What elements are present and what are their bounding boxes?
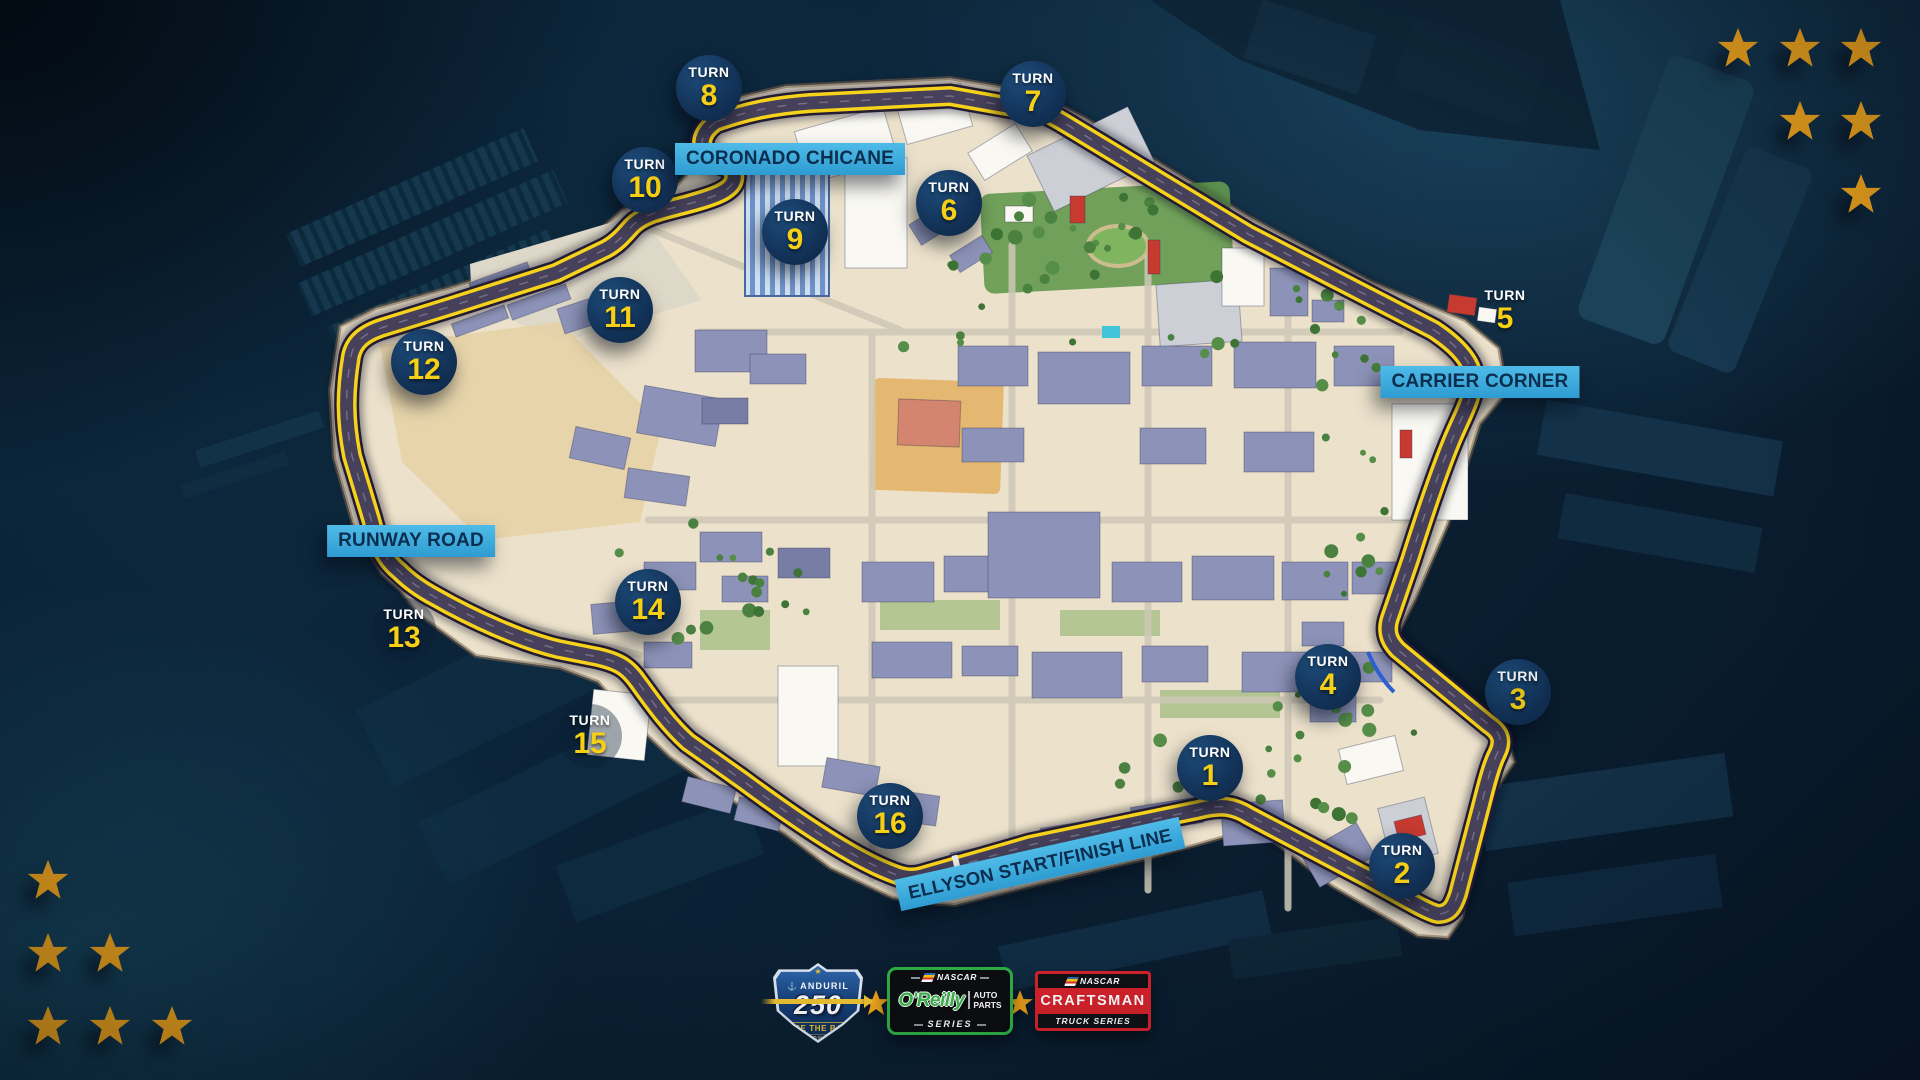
decor-star [151,1006,193,1046]
decor-star [27,933,69,973]
turn-number: 6 [941,196,958,226]
oreilly-series: SERIES [927,1020,972,1029]
decor-star [1840,28,1882,68]
decor-star [1779,28,1821,68]
turn-marker-1: TURN1 [1177,735,1243,801]
turn-word: TURN [869,793,910,807]
turn-number: 5 [1497,304,1514,334]
turn-word: TURN [1307,654,1348,668]
dash-icon [911,977,920,979]
turn-marker-9: TURN9 [762,199,828,265]
turn-word: TURN [403,339,444,353]
decor-star [89,1006,131,1046]
turn-number: 8 [701,81,718,111]
turn-number: 12 [407,355,440,385]
turn-word: TURN [1381,843,1422,857]
turn-marker-4: TURN4 [1295,644,1361,710]
badge-star-icon: ★ [814,968,821,976]
oreilly-brand: O'Reilly [898,991,964,1010]
turn-marker-13: TURN13 [372,598,436,662]
turn-marker-6: TURN6 [916,170,982,236]
label-carrier-corner: CARRIER CORNER [1381,366,1580,398]
turn-number: 7 [1025,87,1042,117]
decor-star [1840,174,1882,214]
turn-word: TURN [1497,669,1538,683]
turn-marker-8: TURN8 [676,55,742,121]
turn-marker-12: TURN12 [391,329,457,395]
turn-number: 1 [1202,761,1219,791]
turn-number: 2 [1394,859,1411,889]
decor-star [27,860,69,900]
nascar-oreilly-series-logo: NASCAR O'Reilly AUTOPARTS SERIES [887,967,1013,1035]
sanction-name: NASCAR [1080,976,1120,986]
decor-star [1779,101,1821,141]
badge-race-number: 250 [794,992,842,1019]
turn-number: 4 [1320,670,1337,700]
turn-word: TURN [627,579,668,593]
turn-marker-15: TURN15 [558,704,622,768]
anduril-250-badge: ★ ⚓ANDURIL 250 RACE THE BASE CORONADO [773,963,863,1043]
badge-tagline: RACE THE BASE [777,1022,858,1035]
turn-marker-3: TURN3 [1485,659,1551,725]
label-runway-road: RUNWAY ROAD [327,525,495,557]
decor-star [27,1006,69,1046]
oreilly-product-bottom: PARTS [973,1001,1001,1010]
turn-marker-5: TURN5 [1484,288,1525,334]
turn-word: TURN [774,209,815,223]
turn-word: TURN [928,180,969,194]
turn-number: 3 [1510,685,1527,715]
dash-icon [980,977,989,979]
turn-number: 9 [787,225,804,255]
turn-word: TURN [1189,745,1230,759]
turn-number: 14 [631,595,664,625]
oreilly-product-top: AUTO [973,991,1001,1000]
aerial-map-graphic [0,0,1920,1080]
nascar-bars-icon [921,973,936,982]
turn-marker-2: TURN2 [1369,833,1435,899]
badge-accent-bar [761,999,875,1004]
sanction-name: NASCAR [937,973,977,982]
nascar-bars-icon [1064,977,1079,986]
label-coronado-chicane: CORONADO CHICANE [675,143,905,175]
turn-marker-10: TURN10 [612,147,678,213]
turn-number: 16 [873,809,906,839]
turn-word: TURN [569,713,610,727]
turn-word: TURN [688,65,729,79]
decor-star [1717,28,1759,68]
turn-number: 10 [628,173,661,203]
turn-marker-14: TURN14 [615,569,681,635]
nascar-craftsman-truck-series-logo: NASCAR CRAFTSMAN TRUCK SERIES [1035,971,1151,1031]
turn-marker-7: TURN7 [1000,61,1066,127]
turn-word: TURN [599,287,640,301]
turn-word: TURN [1484,288,1525,302]
turn-marker-11: TURN11 [587,277,653,343]
race-track-map: CORONADO CHICANE CARRIER CORNER RUNWAY R… [0,0,1920,1080]
decor-star [89,933,131,973]
craftsman-brand: CRAFTSMAN [1038,988,1148,1014]
pool [1102,326,1120,338]
turn-word: TURN [383,607,424,621]
turn-number: 11 [604,303,636,333]
dash-icon [977,1024,986,1026]
craftsman-series: TRUCK SERIES [1038,1014,1148,1028]
turn-marker-16: TURN16 [857,783,923,849]
decor-star [1840,101,1882,141]
turn-word: TURN [1012,71,1053,85]
turn-word: TURN [624,157,665,171]
dash-icon [914,1024,923,1026]
turn-number: 15 [573,729,606,759]
turn-number: 13 [387,623,420,653]
